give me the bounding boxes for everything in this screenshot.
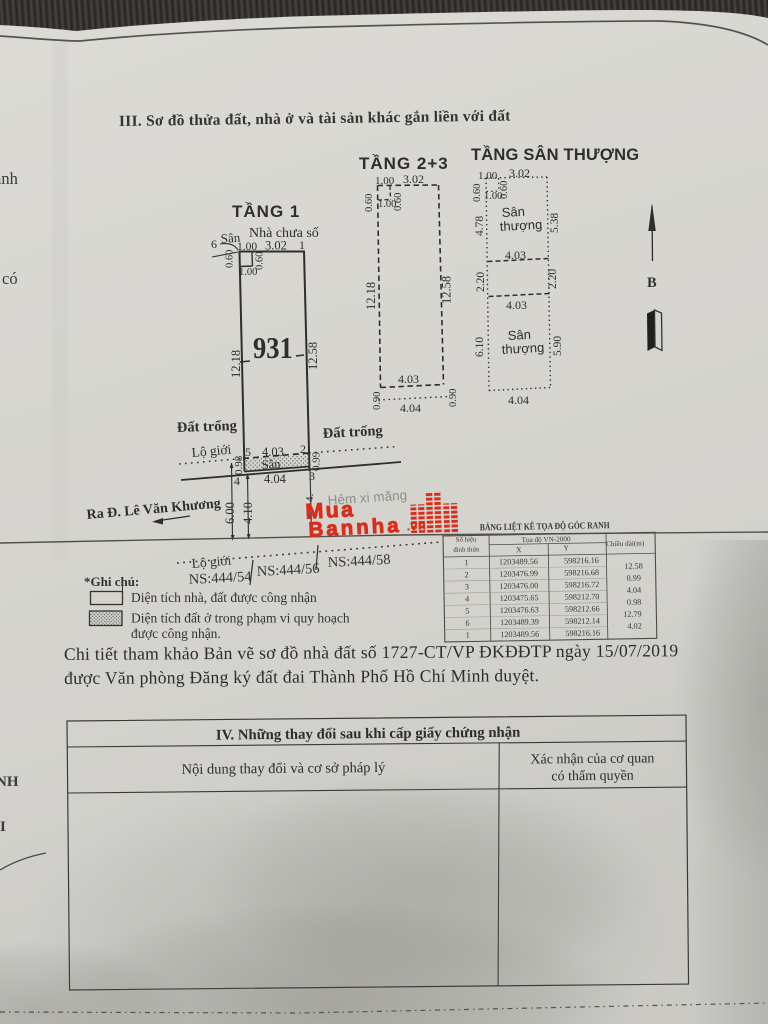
- svg-text:12.58: 12.58: [440, 276, 454, 304]
- svg-text:NS:444/58: NS:444/58: [327, 552, 391, 571]
- svg-text:931: 931: [253, 332, 293, 365]
- svg-text:1: 1: [466, 631, 470, 640]
- svg-text:Chi tiết tham khảo Bản vẽ sơ đ: Chi tiết tham khảo Bản vẽ sơ đồ nhà đất …: [64, 640, 679, 664]
- svg-text:3.02: 3.02: [403, 172, 424, 186]
- svg-text:6: 6: [465, 619, 469, 628]
- svg-text:598216.16: 598216.16: [565, 628, 600, 638]
- svg-text:2: 2: [465, 570, 469, 579]
- svg-text:Xác nhận của cơ quan: Xác nhận của cơ quan: [530, 751, 654, 767]
- svg-text:4.03: 4.03: [506, 298, 527, 312]
- svg-text:2.20: 2.20: [475, 272, 487, 292]
- svg-text:0.90: 0.90: [372, 392, 383, 410]
- svg-text:6: 6: [211, 237, 217, 251]
- svg-text:4.04: 4.04: [627, 586, 641, 595]
- svg-text:thượng: thượng: [501, 340, 544, 357]
- svg-text:12.79: 12.79: [623, 610, 642, 619]
- svg-text:1203489.39: 1203489.39: [500, 617, 539, 627]
- svg-text:4.04: 4.04: [400, 401, 421, 415]
- svg-text:3.02: 3.02: [265, 239, 287, 253]
- svg-text:NH: NH: [0, 774, 19, 790]
- svg-text:Diện tích đất ở trong phạm vi: Diện tích đất ở trong phạm vi quy hoạch: [131, 611, 350, 626]
- svg-text:1.00: 1.00: [237, 241, 257, 253]
- svg-text:*Ghi chú:: *Ghi chú:: [84, 574, 139, 589]
- svg-text:2.20: 2.20: [547, 269, 559, 289]
- svg-text:được công nhận.: được công nhận.: [131, 626, 221, 641]
- svg-text:1.00: 1.00: [239, 267, 257, 278]
- svg-text:6.10: 6.10: [474, 337, 486, 357]
- svg-text:4.02: 4.02: [627, 622, 641, 631]
- svg-text:B: B: [647, 275, 657, 291]
- svg-text:1: 1: [464, 558, 468, 567]
- svg-text:I: I: [0, 819, 6, 835]
- svg-text:đỉnh thửa: đỉnh thửa: [453, 546, 479, 553]
- svg-text:598216.72: 598216.72: [564, 580, 599, 590]
- svg-text:4.03: 4.03: [398, 372, 419, 386]
- svg-text:6.00: 6.00: [223, 502, 237, 524]
- svg-text:4: 4: [465, 594, 469, 603]
- svg-text:Diện tích nhà, đất được công n: Diện tích nhà, đất được công nhận: [131, 590, 317, 605]
- svg-text:0.98: 0.98: [627, 598, 641, 607]
- svg-text:5: 5: [245, 445, 251, 459]
- svg-text:được Văn phòng Đăng ký đất đai: được Văn phòng Đăng ký đất đai Thành Phố…: [64, 665, 539, 688]
- svg-text:12.58: 12.58: [306, 342, 320, 370]
- svg-text:4.04: 4.04: [264, 472, 287, 486]
- svg-text:0.99: 0.99: [627, 574, 641, 583]
- svg-text:1203476.63: 1203476.63: [500, 605, 539, 615]
- svg-text:1203475.65: 1203475.65: [500, 593, 539, 603]
- svg-text:Đất trống: Đất trống: [177, 418, 238, 436]
- svg-text:4.04: 4.04: [508, 393, 529, 407]
- svg-text:12.18: 12.18: [364, 282, 378, 310]
- svg-text:Chiều dài(m): Chiều dài(m): [606, 539, 645, 548]
- svg-text:5.38: 5.38: [549, 213, 561, 233]
- svg-text:5: 5: [465, 607, 469, 616]
- svg-text:5.90: 5.90: [552, 336, 564, 356]
- svg-text:598212.66: 598212.66: [565, 604, 600, 614]
- svg-text:0.60: 0.60: [225, 250, 236, 268]
- svg-text:598216.68: 598216.68: [564, 568, 599, 578]
- svg-text:1203476.99: 1203476.99: [499, 569, 538, 579]
- svg-text:0.60: 0.60: [472, 184, 483, 202]
- svg-text:0.60: 0.60: [364, 194, 375, 212]
- svg-text:1: 1: [299, 238, 305, 252]
- svg-text:1.00: 1.00: [478, 170, 498, 182]
- svg-text:TẦNG 2+3: TẦNG 2+3: [359, 154, 449, 173]
- svg-text:598216.16: 598216.16: [564, 556, 599, 566]
- svg-text:ành: ành: [0, 169, 19, 188]
- svg-text:Y: Y: [563, 543, 569, 552]
- svg-text:X: X: [516, 545, 522, 554]
- svg-text:12.18: 12.18: [229, 350, 243, 378]
- svg-text:TẦNG 1: TẦNG 1: [232, 202, 300, 221]
- svg-text:0.90: 0.90: [448, 389, 459, 407]
- svg-text:3: 3: [465, 582, 469, 591]
- svg-text:4.10: 4.10: [241, 502, 255, 524]
- svg-text:NS:444/54: NS:444/54: [188, 569, 252, 588]
- svg-text:Bannha: Bannha: [308, 514, 402, 542]
- svg-text:1203476.00: 1203476.00: [499, 581, 538, 591]
- svg-text:TẦNG SÂN THƯỢNG: TẦNG SÂN THƯỢNG: [471, 145, 639, 164]
- svg-text:598212.70: 598212.70: [565, 592, 600, 602]
- svg-text:BẢNG LIỆT KÊ TỌA ĐỘ GÓC RANH: BẢNG LIỆT KÊ TỌA ĐỘ GÓC RANH: [480, 519, 610, 532]
- svg-text:có: có: [2, 269, 18, 288]
- svg-text:4.78: 4.78: [474, 216, 486, 236]
- svg-text:Đất trống: Đất trống: [322, 423, 384, 442]
- svg-text:thượng: thượng: [499, 217, 542, 234]
- svg-text:Sân: Sân: [261, 457, 281, 472]
- svg-text:Số hiệu: Số hiệu: [456, 536, 477, 543]
- svg-text:12.58: 12.58: [624, 562, 643, 571]
- svg-text:1.00: 1.00: [378, 199, 396, 210]
- svg-text:1203489.56: 1203489.56: [499, 557, 538, 567]
- svg-text:1203489.56: 1203489.56: [500, 630, 539, 640]
- svg-text:NS:444/56: NS:444/56: [256, 561, 320, 580]
- svg-text:4.03: 4.03: [505, 248, 526, 262]
- svg-text:1.00: 1.00: [484, 191, 502, 202]
- svg-text:có thẩm quyền: có thẩm quyền: [551, 769, 634, 785]
- svg-text:598212.14: 598212.14: [565, 616, 600, 626]
- svg-text:IV. Những thay đổi sau khi cấp: IV. Những thay đổi sau khi cấp giấy chứn…: [216, 725, 521, 744]
- svg-text:0.98: 0.98: [233, 455, 245, 475]
